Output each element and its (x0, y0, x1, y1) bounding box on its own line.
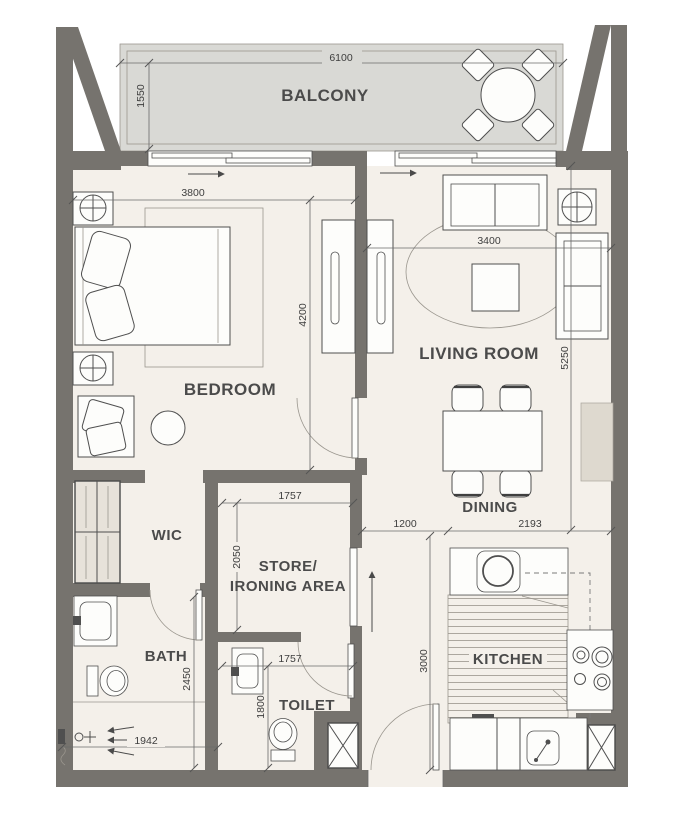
dim-text: 3000 (418, 649, 430, 673)
room-label-living: LIVING ROOM (419, 344, 539, 363)
toilet-sink (231, 648, 263, 694)
dim-text: 3400 (477, 235, 501, 247)
tv (377, 252, 385, 324)
dim-text: 2050 (231, 545, 243, 569)
stove (567, 630, 613, 710)
tv-unit-living (367, 220, 393, 353)
service-shaft (328, 723, 358, 768)
dim-text: 4200 (297, 303, 309, 327)
pouf (151, 411, 185, 445)
dim-text: 2193 (518, 518, 542, 530)
room-label-wic: WIC (152, 527, 183, 544)
service-shaft (588, 725, 615, 770)
wash-basin (527, 731, 559, 765)
room-label-bedroom: BEDROOM (184, 380, 276, 399)
dim-text: 1757 (278, 490, 302, 502)
tv (331, 252, 339, 324)
nightstand-lamp (73, 352, 113, 385)
toilet-wc (269, 719, 297, 762)
ceiling-fan-icon (558, 189, 596, 225)
dim-text: 5250 (559, 346, 571, 370)
sofa-two-seat (556, 233, 608, 339)
room-label-toilet: TOILET (279, 697, 335, 714)
dim-text: 1800 (255, 695, 267, 719)
bath-toilet (87, 666, 128, 696)
floor-plan: 6100 1550 3800 4200 3400 5250 1200 2193 … (0, 0, 681, 813)
room-label-store-line2: IRONING AREA (230, 578, 346, 595)
armchair (78, 396, 134, 457)
dim-text: 6100 (329, 52, 353, 64)
dining-table (443, 411, 542, 471)
bath-sink (73, 596, 117, 646)
room-label-store-line1: STORE/ (259, 558, 318, 575)
room-label-kitchen: KITCHEN (473, 651, 543, 668)
side-cabinet (581, 403, 613, 481)
dim-text: 3800 (181, 187, 205, 199)
bed (75, 227, 230, 345)
dim-text: 1757 (278, 653, 302, 665)
tv-unit-bedroom (322, 220, 355, 353)
dim-text: 1942 (134, 735, 158, 747)
dim-text: 2450 (181, 667, 193, 691)
floor-plan-svg: 6100 1550 3800 4200 3400 5250 1200 2193 … (0, 0, 681, 813)
dining-chair (500, 385, 531, 412)
balcony-table (481, 68, 535, 122)
room-label-dining: DINING (462, 499, 518, 516)
wardrobe (75, 481, 120, 583)
room-label-balcony: BALCONY (281, 86, 369, 105)
room-label-bath: BATH (145, 648, 188, 665)
dining-chair (452, 385, 483, 412)
coffee-table (472, 264, 519, 311)
dining-chair (500, 470, 531, 497)
kitchen-counter-bottom (450, 714, 587, 770)
dim-text: 1200 (393, 518, 417, 530)
sofa (443, 175, 547, 230)
nightstand-lamp (73, 192, 113, 225)
dining-chair (452, 470, 483, 497)
dim-text: 1550 (135, 84, 147, 108)
kitchen-counter-top (450, 548, 568, 595)
